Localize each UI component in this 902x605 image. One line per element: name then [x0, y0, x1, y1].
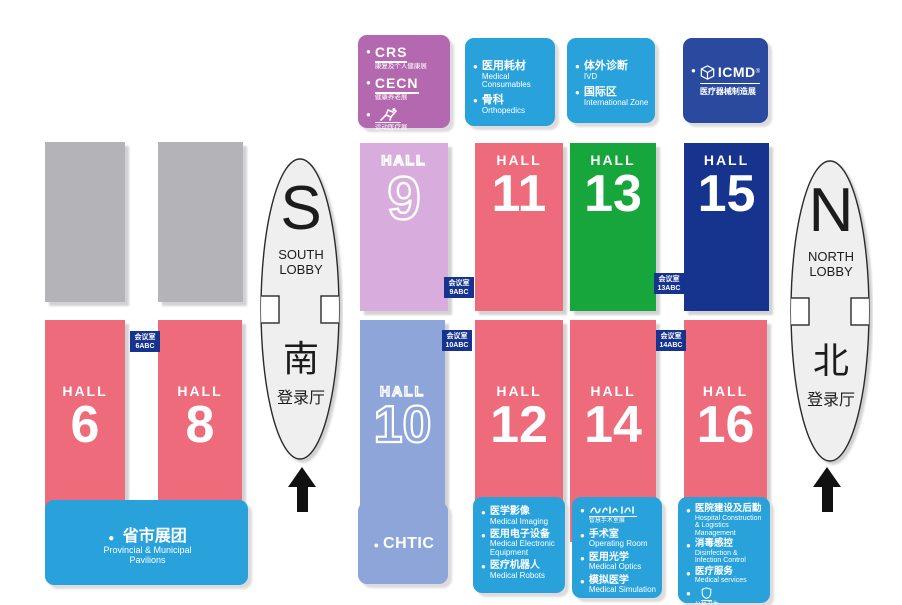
legend-item: ● 医疗服务 Medical services: [686, 567, 764, 585]
hall-14-number: 14: [584, 398, 642, 453]
provincial-cn: 省市展团: [123, 528, 187, 545]
north-lobby: N NORTH LOBBY 北 登录厅: [789, 158, 873, 468]
south-lobby: S SOUTH LOBBY 南 登录厅: [259, 156, 343, 466]
hall-13-block: HALL 13: [570, 143, 656, 311]
bullet-icon: ●: [575, 61, 580, 73]
legend-item: ● 模拟医学 Medical Simulation: [580, 575, 656, 595]
legend-item-shield: ● 公共卫生: [686, 587, 764, 605]
south-lobby-name: SOUTH LOBBY: [259, 248, 343, 277]
legend-item: ● 骨科 Orthopedics: [473, 94, 549, 115]
legend-item-crs: ● CRS 康复及个人健康展: [366, 45, 444, 71]
crs-logo: CRS: [375, 45, 408, 63]
bullet-icon: ●: [366, 46, 371, 58]
icmd-logo: ICMD: [718, 64, 756, 80]
bullet-icon: ●: [580, 553, 585, 565]
legend-item: ● 消毒感控 Disinfection & Infection Control: [686, 539, 764, 565]
legend-hall12-categories: ● 医学影像 Medical Imaging ● 医用电子设备 Medical …: [473, 497, 565, 593]
hall-9-block: HALL 9: [360, 143, 448, 311]
legend-item-cecn: ● CECN 健康养老展: [366, 76, 444, 102]
bullet-icon: ●: [580, 530, 585, 542]
hall-8-number: 8: [186, 398, 215, 453]
bullet-icon: ●: [686, 505, 691, 517]
chtic-logo: CHTIC: [383, 535, 434, 553]
bullet-icon: ●: [481, 530, 486, 542]
legend-icmd: ● ICMD ® 医疗器械制造展: [683, 38, 768, 123]
meeting-room-9abc: 会议室 9ABC: [444, 277, 474, 298]
hall-10-number: 10: [374, 398, 432, 453]
legend-item: ● 国际区 International Zone: [575, 86, 649, 107]
icmd-subtitle: 医疗器械制造展: [700, 87, 756, 97]
bullet-icon: ●: [686, 540, 691, 552]
bullet-icon: ●: [686, 568, 691, 580]
runner-icon: [375, 108, 401, 123]
meeting-room-14abc: 会议室 14ABC: [656, 330, 686, 351]
legend-item: ● 医院建设及后勤 Hospital Construction & Logist…: [686, 504, 764, 537]
shield-icon: [701, 587, 712, 601]
legend-item: ● 医用电子设备 Medical Electronic Equipment: [481, 529, 559, 557]
north-lobby-letter: N: [789, 180, 873, 242]
legend-item-icmd: ● ICMD ® 医疗器械制造展: [691, 64, 762, 97]
legend-item: ● 医用耗材 Medical Consumables: [473, 60, 549, 89]
hall-13-number: 13: [584, 167, 642, 222]
bullet-icon: ●: [473, 61, 478, 73]
meeting-room-13abc: 会议室 13ABC: [654, 273, 684, 294]
legend-item: ● 手术室 Operating Room: [580, 529, 656, 549]
gray-hall-block-right: [158, 142, 243, 302]
bullet-icon: ●: [686, 588, 691, 600]
legend-item: ● 医疗机器人 Medical Robots: [481, 560, 559, 580]
north-entrance-arrow-icon: [813, 467, 841, 512]
exhibition-floor-plan: HALL 6 HALL 8 HALL 9 HALL 11 HALL 13 HAL…: [0, 0, 902, 605]
hall-16-number: 16: [697, 398, 755, 453]
bullet-icon: ●: [580, 576, 585, 588]
hall-15-block: HALL 15: [684, 143, 769, 311]
legend-item: ● 体外诊断 IVD: [575, 60, 649, 81]
bullet-icon: ●: [481, 507, 486, 519]
legend-item-brand: ● 智慧手术室展: [580, 504, 656, 526]
legend-item: ● 医学影像 Medical Imaging: [481, 506, 559, 526]
legend-hall14-categories: ● 智慧手术室展 ● 手术室 Operating Room ● 医用光学 Med…: [572, 497, 662, 598]
cube-icon: [700, 65, 715, 80]
bullet-icon: ●: [691, 65, 696, 77]
icmd-logo-sup: ®: [756, 69, 760, 75]
legend-chtic: ● CHTIC: [358, 502, 448, 584]
bullet-icon: ●: [366, 77, 371, 89]
cursive-wordmark-logo: [589, 504, 637, 517]
hall-6-number: 6: [71, 398, 100, 453]
cecn-subtitle: 健康养老展: [375, 94, 408, 102]
north-lobby-cn-sub: 登录厅: [789, 386, 873, 410]
crs-subtitle: 康复及个人健康展: [375, 63, 427, 71]
legend-provincial-pavilions: ● 省市展团 Provincial & Municipal Pavilions: [45, 500, 248, 585]
bullet-icon: ●: [580, 505, 585, 517]
hall-11-block: HALL 11: [475, 143, 563, 311]
north-lobby-cn: 北: [789, 343, 873, 379]
sports-subtitle: 运动医疗展: [375, 124, 408, 132]
bullet-icon: ●: [473, 95, 478, 107]
bullet-icon: ●: [366, 109, 371, 121]
bullet-icon: ●: [108, 533, 114, 544]
hall-12-number: 12: [490, 398, 548, 453]
legend-item: ● 医用光学 Medical Optics: [580, 552, 656, 572]
legend-crs-cecn: ● CRS 康复及个人健康展 ● CECN 健康养老展 ● 运动医疗展: [358, 35, 450, 128]
bullet-icon: ●: [374, 539, 379, 551]
meeting-room-10abc: 会议室 10ABC: [442, 330, 472, 351]
provincial-en-2: Pavilions: [103, 556, 191, 565]
brand-subtitle: 智慧手术室展: [589, 518, 625, 526]
south-lobby-cn: 南: [259, 341, 343, 377]
meeting-room-6abc: 会议室 6ABC: [130, 331, 160, 352]
legend-ivd-international: ● 体外诊断 IVD ● 国际区 International Zone: [567, 38, 655, 123]
south-lobby-letter: S: [259, 178, 343, 240]
bullet-icon: ●: [575, 87, 580, 99]
south-entrance-arrow-icon: [288, 467, 316, 512]
hall-11-number: 11: [492, 167, 547, 222]
legend-consumables-orthopedics: ● 医用耗材 Medical Consumables ● 骨科 Orthoped…: [465, 38, 555, 126]
legend-hall16-categories: ● 医院建设及后勤 Hospital Construction & Logist…: [678, 497, 770, 603]
gray-hall-block-left: [45, 142, 125, 302]
legend-item-sports: ● 运动医疗展: [366, 108, 444, 132]
hall-15-number: 15: [698, 167, 756, 222]
cecn-logo: CECN: [375, 76, 419, 94]
south-lobby-cn-sub: 登录厅: [259, 384, 343, 408]
hall-9-number: 9: [387, 167, 420, 230]
bullet-icon: ●: [481, 561, 486, 573]
north-lobby-name: NORTH LOBBY: [789, 250, 873, 279]
